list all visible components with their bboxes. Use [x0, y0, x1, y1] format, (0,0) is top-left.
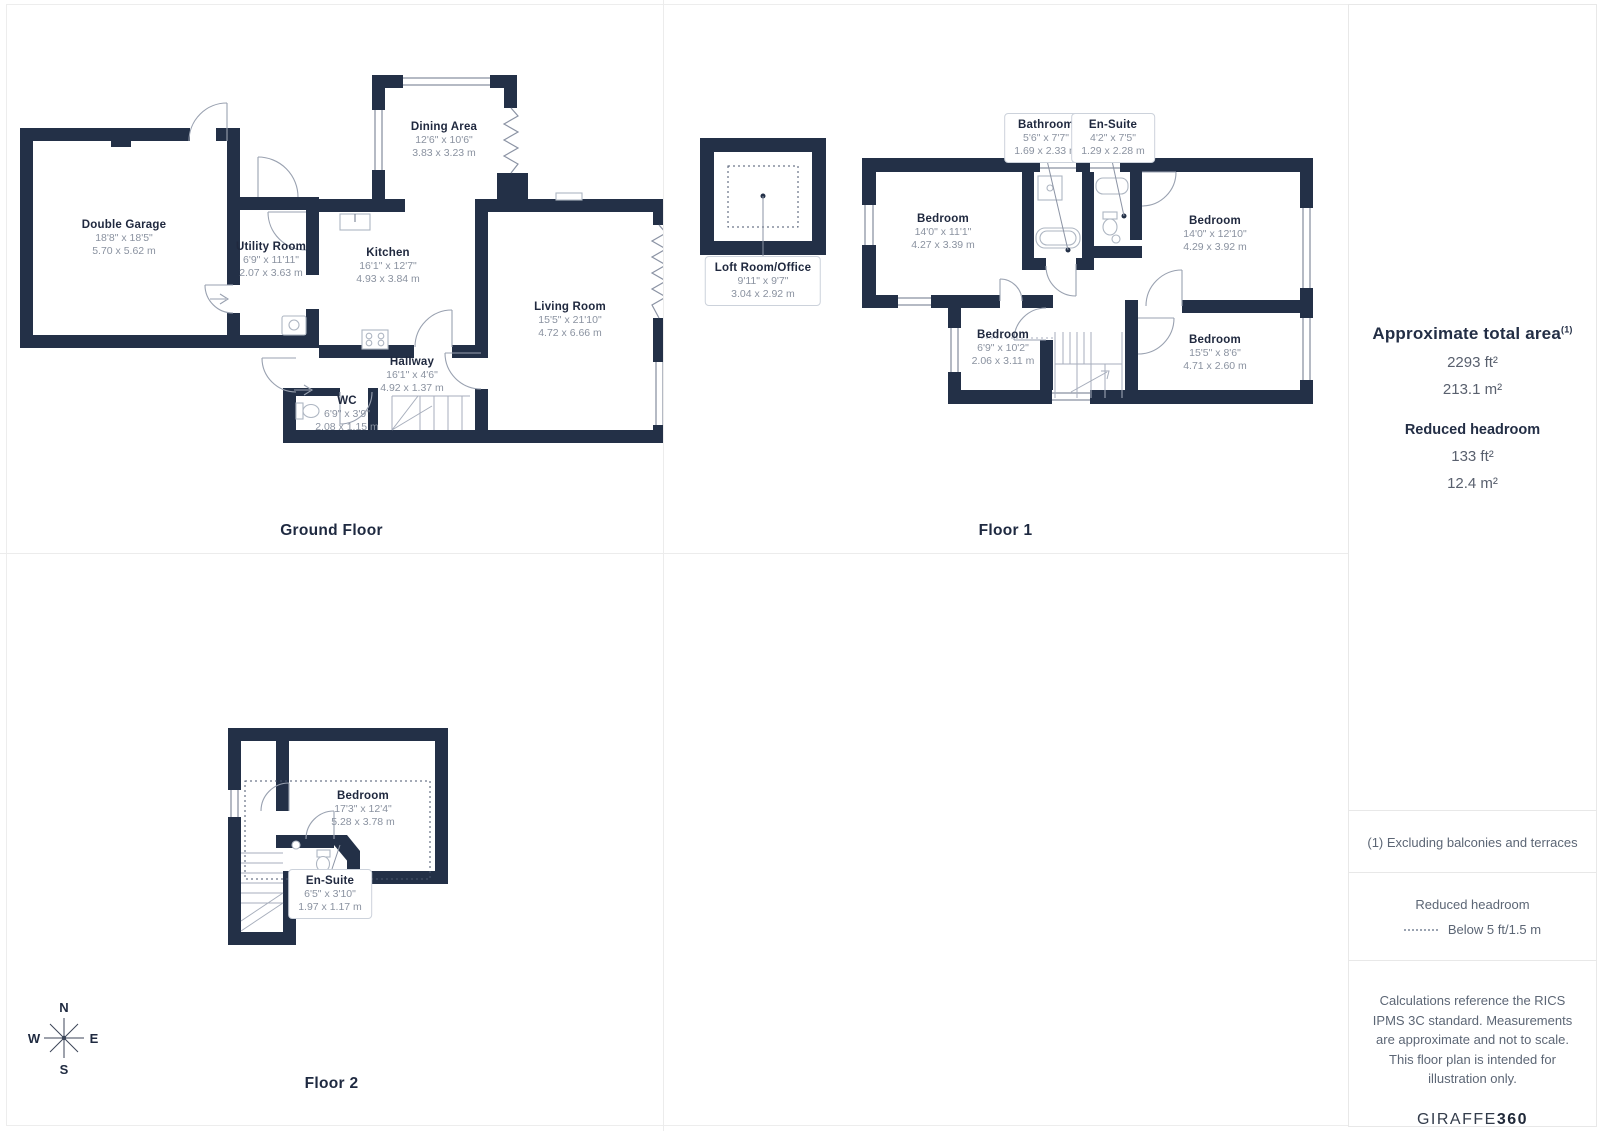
room-label: WC 6'9" x 3'9" 2.08 x 1.15 m	[315, 394, 379, 434]
floor2-cell: N S W E Bedroom 17'3" x 12'4" 5.28 x 3.7…	[0, 553, 663, 1131]
room-label: Bedroom 14'0" x 12'10" 4.29 x 3.92 m	[1183, 214, 1247, 254]
floor1-cell: Loft Room/Office 9'11" x 9'7" 3.04 x 2.9…	[663, 0, 1348, 553]
room-label: Loft Room/Office 9'11" x 9'7" 3.04 x 2.9…	[705, 256, 821, 306]
brand-logo: GIRAFFE360	[1417, 1111, 1528, 1129]
floor-title: Floor 1	[663, 522, 1348, 540]
room-label: Bedroom 6'9" x 10'2" 2.06 x 3.11 m	[972, 328, 1035, 368]
floor2-plan: N S W E	[0, 553, 663, 1131]
room-label: Hallway 16'1" x 4'6" 4.92 x 1.37 m	[380, 355, 444, 395]
room-label: Double Garage 18'8" x 18'5" 5.70 x 5.62 …	[82, 218, 166, 258]
doors	[261, 783, 334, 839]
room-label: En-Suite 6'5" x 3'10" 1.97 x 1.17 m	[288, 869, 372, 919]
toilet-icon	[1103, 212, 1117, 235]
legend-section: Reduced headroom Below 5 ft/1.5 m	[1349, 872, 1596, 961]
ground-floor-cell: Double Garage 18'8" x 18'5" 5.70 x 5.62 …	[0, 0, 663, 553]
area-summary-section: Approximate total area(1) 2293 ft² 213.1…	[1349, 5, 1596, 810]
room-label: En-Suite 4'2" x 7'5" 1.29 x 2.28 m	[1071, 113, 1155, 163]
reduced-headroom-title: Reduced headroom	[1405, 422, 1540, 438]
total-area-m: 213.1 m²	[1443, 381, 1502, 398]
room-label: Bedroom 17'3" x 12'4" 5.28 x 3.78 m	[331, 789, 395, 829]
info-panel: Approximate total area(1) 2293 ft² 213.1…	[1348, 4, 1597, 1127]
room-label: Bedroom 15'5" x 8'6" 4.71 x 2.60 m	[1183, 333, 1247, 373]
leader-line	[332, 845, 340, 869]
legend-label: Below 5 ft/1.5 m	[1448, 922, 1541, 937]
fireplace-icon	[556, 193, 582, 200]
legend-row: Below 5 ft/1.5 m	[1404, 922, 1541, 937]
disclaimer-text: Calculations reference the RICS IPMS 3C …	[1364, 991, 1582, 1089]
compass-w: W	[28, 1031, 41, 1046]
floor-title: Floor 2	[0, 1075, 663, 1093]
reduced-headroom-m: 12.4 m²	[1447, 475, 1498, 492]
sink-icon	[1112, 235, 1120, 243]
disclaimer-section: Calculations reference the RICS IPMS 3C …	[1349, 960, 1596, 1126]
shower-icon	[1038, 176, 1062, 200]
room-label: Living Room 15'5" x 21'10" 4.72 x 6.66 m	[534, 300, 606, 340]
washer-icon	[282, 316, 306, 335]
break-lines	[504, 108, 663, 318]
compass-icon	[44, 1018, 84, 1058]
floorplan-page: Double Garage 18'8" x 18'5" 5.70 x 5.62 …	[0, 0, 1600, 1131]
walls	[20, 75, 663, 443]
compass-n: N	[59, 1000, 68, 1015]
total-area-title: Approximate total area(1)	[1372, 324, 1572, 344]
stairs-icon	[392, 396, 470, 430]
dotted-line-icon	[1404, 929, 1438, 931]
footnote-marker: (1)	[1561, 324, 1573, 334]
windows	[228, 790, 241, 817]
compass-e: E	[90, 1031, 99, 1046]
hob-icon	[362, 330, 388, 349]
bathtub-icon	[1036, 228, 1080, 248]
room-label: Bedroom 14'0" x 11'1" 4.27 x 3.39 m	[911, 212, 975, 252]
floor-title: Ground Floor	[0, 522, 663, 540]
bath-icon	[1096, 178, 1128, 194]
footnote-section: (1) Excluding balconies and terraces	[1349, 810, 1596, 873]
room-label: Dining Area 12'6" x 10'6" 3.83 x 3.23 m	[411, 120, 477, 160]
sink-icon	[292, 841, 300, 849]
legend-title: Reduced headroom	[1415, 897, 1529, 912]
footnote-text: (1) Excluding balconies and terraces	[1367, 835, 1577, 850]
reduced-headroom-ft: 133 ft²	[1451, 448, 1494, 465]
total-area-ft: 2293 ft²	[1447, 354, 1498, 371]
ground-floor-plan	[0, 0, 663, 553]
room-label: Utility Room 6'9" x 11'11" 2.07 x 3.63 m	[236, 240, 306, 280]
stairs-icon	[241, 853, 283, 931]
room-label: Kitchen 16'1" x 12'7" 4.93 x 3.84 m	[356, 246, 420, 286]
